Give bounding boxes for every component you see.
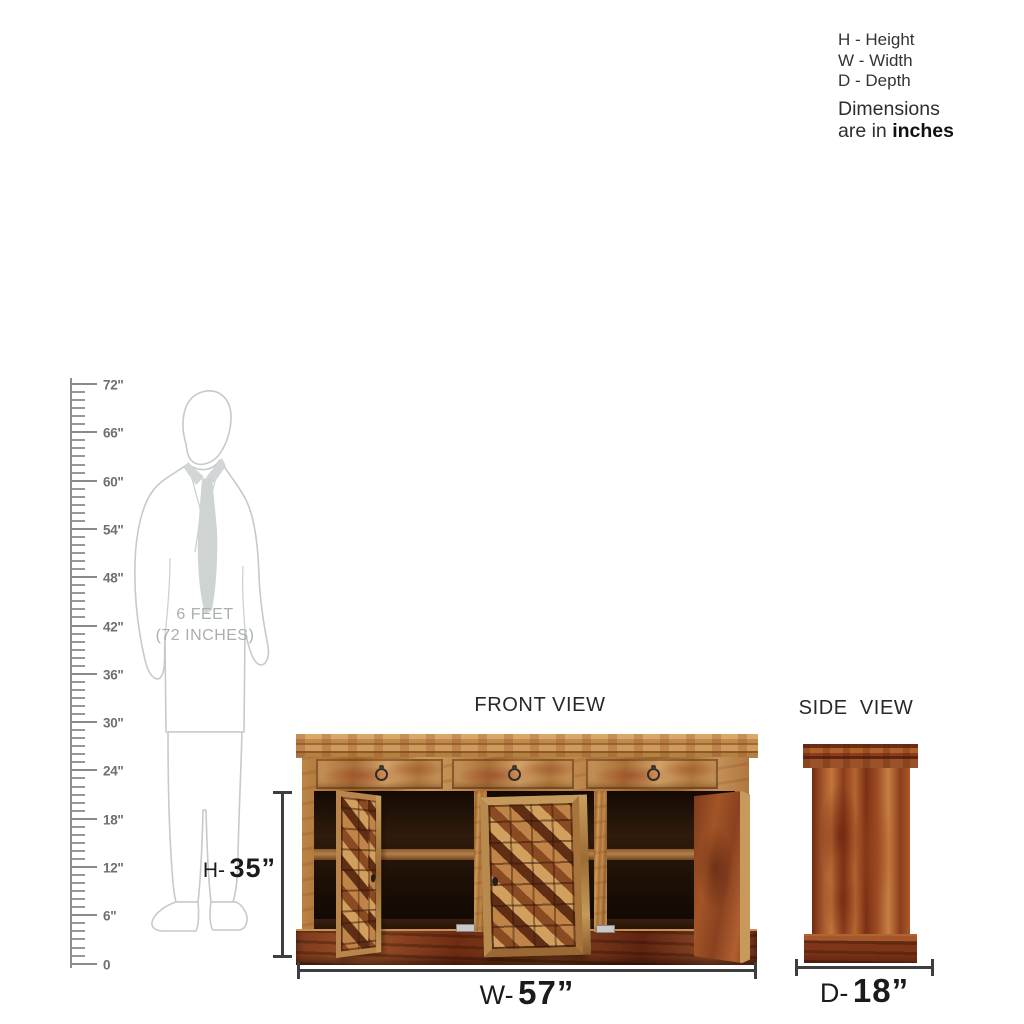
side-view-cabinet: [803, 744, 918, 963]
width-label: W- 57”: [297, 974, 757, 1012]
ruler-major-tick: [72, 528, 97, 530]
ruler-minor-tick: [72, 391, 85, 393]
ruler-minor-tick: [72, 898, 85, 900]
ruler-minor-tick: [72, 761, 85, 763]
depth-value: 18”: [853, 972, 909, 1009]
width-dimension-line: [297, 969, 757, 972]
ruler-minor-tick: [72, 906, 85, 908]
ruler-minor-tick: [72, 850, 85, 852]
front-view-title: FRONT VIEW: [420, 694, 660, 717]
ruler-minor-tick: [72, 842, 85, 844]
ruler-major-tick: [72, 721, 97, 723]
ruler-minor-tick: [72, 633, 85, 635]
ruler-major-tick: [72, 383, 97, 385]
cabinet-top-cornice: [296, 734, 758, 757]
ruler-minor-tick: [72, 641, 85, 643]
ruler-minor-tick: [72, 592, 85, 594]
ruler-major-tick: [72, 576, 97, 578]
ruler-minor-tick: [72, 713, 85, 715]
ruler-tick-label: 6": [103, 909, 116, 924]
ruler-tick-label: 60": [103, 474, 124, 489]
ruler-minor-tick: [72, 472, 85, 474]
height-dimension-line: [281, 791, 284, 958]
ruler-minor-tick: [72, 536, 85, 538]
ring-pull-icon: [647, 768, 660, 781]
dimension-diagram-page: { "legend": { "items": ["H - Height", "W…: [0, 0, 1024, 1024]
ruler-minor-tick: [72, 544, 85, 546]
legend-note: Dimensions are in inches: [838, 98, 978, 143]
ruler-minor-tick: [72, 447, 85, 449]
ring-pull-icon: [508, 768, 521, 781]
width-value: 57”: [518, 974, 574, 1011]
figure-caption-line2: (72 INCHES): [143, 625, 267, 646]
frame-stile-right: [594, 791, 607, 932]
ruler-tick-label: 18": [103, 812, 124, 827]
side-panel: [812, 768, 910, 936]
ruler-tick-label: 48": [103, 571, 124, 586]
legend-note-line2: are in inches: [838, 120, 978, 143]
ruler-minor-tick: [72, 786, 85, 788]
ruler-minor-tick: [72, 608, 85, 610]
ruler-minor-tick: [72, 777, 85, 779]
legend-height: H - Height: [838, 30, 978, 51]
depth-prefix: D-: [820, 978, 849, 1008]
ruler-minor-tick: [72, 657, 85, 659]
door-middle-carved: [480, 795, 584, 958]
ruler-minor-tick: [72, 834, 85, 836]
side-top-cornice: [803, 744, 918, 768]
ruler-minor-tick: [72, 568, 85, 570]
ring-pull-icon: [375, 768, 388, 781]
latch-plate: [596, 925, 615, 933]
ruler-minor-tick: [72, 737, 85, 739]
height-value: 35”: [229, 853, 276, 883]
ruler-minor-tick: [72, 560, 85, 562]
figure-shoe-right: [210, 902, 247, 930]
side-plinth: [804, 934, 917, 963]
ruler-minor-tick: [72, 890, 85, 892]
ruler-minor-tick: [72, 504, 85, 506]
height-prefix: H-: [203, 859, 225, 882]
drawer-row: [302, 757, 749, 791]
ruler-major-tick: [72, 480, 97, 482]
ruler-minor-tick: [72, 415, 85, 417]
width-prefix: W-: [480, 980, 514, 1010]
ruler-tick-label: 42": [103, 619, 124, 634]
ruler-minor-tick: [72, 745, 85, 747]
ruler-major-tick: [72, 818, 97, 820]
ruler-minor-tick: [72, 439, 85, 441]
ruler-tick-label: 24": [103, 764, 124, 779]
door-knob-icon: [371, 874, 375, 883]
ruler-minor-tick: [72, 399, 85, 401]
drawer-left: [316, 759, 443, 789]
figure-shoe-left: [152, 902, 199, 931]
depth-dimension-line: [795, 966, 934, 969]
ruler-minor-tick: [72, 729, 85, 731]
ruler-minor-tick: [72, 930, 85, 932]
ruler-major-tick: [72, 914, 97, 916]
ruler-major-tick: [72, 866, 97, 868]
ruler-minor-tick: [72, 407, 85, 409]
ruler-minor-tick: [72, 520, 85, 522]
ruler-tick-label: 36": [103, 667, 124, 682]
ruler-minor-tick: [72, 681, 85, 683]
front-view-cabinet: [296, 734, 758, 965]
ruler-tick-label: 0: [103, 957, 110, 972]
legend-width: W - Width: [838, 51, 978, 72]
figure-caption-line1: 6 FEET: [143, 604, 267, 625]
drawer-middle: [452, 759, 574, 789]
ruler-minor-tick: [72, 826, 85, 828]
ruler-major-tick: [72, 963, 97, 965]
ruler-minor-tick: [72, 464, 85, 466]
figure-caption: 6 FEET (72 INCHES): [143, 604, 267, 646]
ruler-minor-tick: [72, 794, 85, 796]
ruler-minor-tick: [72, 874, 85, 876]
ruler-minor-tick: [72, 496, 85, 498]
ruler-tick-label: 12": [103, 861, 124, 876]
ruler-minor-tick: [72, 665, 85, 667]
door-left-open: [336, 790, 381, 958]
ruler-minor-tick: [72, 858, 85, 860]
ruler-minor-tick: [72, 705, 85, 707]
ruler-minor-tick: [72, 689, 85, 691]
ruler-minor-tick: [72, 697, 85, 699]
side-view-title: SIDE VIEW: [772, 697, 940, 720]
ruler-major-tick: [72, 431, 97, 433]
latch-plate: [456, 924, 475, 932]
ruler-major-tick: [72, 625, 97, 627]
ruler-minor-tick: [72, 616, 85, 618]
ruler-tick-label: 54": [103, 522, 124, 537]
ruler-minor-tick: [72, 810, 85, 812]
height-label: H- 35”: [150, 853, 276, 884]
ruler-minor-tick: [72, 753, 85, 755]
ruler-minor-tick: [72, 584, 85, 586]
figure-head: [183, 391, 231, 464]
ruler-major-tick: [72, 673, 97, 675]
legend-note-unit: inches: [892, 120, 954, 142]
ruler-minor-tick: [72, 649, 85, 651]
ruler-minor-tick: [72, 922, 85, 924]
ruler-major-tick: [72, 769, 97, 771]
legend-note-line1: Dimensions: [838, 98, 978, 121]
depth-label: D- 18”: [795, 972, 934, 1010]
ruler-tick-label: 66": [103, 426, 124, 441]
legend-depth: D - Depth: [838, 71, 978, 92]
door-knob-icon: [492, 877, 498, 886]
ruler-minor-tick: [72, 423, 85, 425]
drawer-right: [586, 759, 718, 789]
ruler-minor-tick: [72, 882, 85, 884]
ruler-minor-tick: [72, 488, 85, 490]
ruler-minor-tick: [72, 802, 85, 804]
ruler-minor-tick: [72, 947, 85, 949]
ruler-minor-tick: [72, 455, 85, 457]
door-right-open: [694, 791, 750, 963]
ruler-tick-label: 72": [103, 378, 124, 393]
ruler-minor-tick: [72, 600, 85, 602]
ruler-tick-label: 30": [103, 716, 124, 731]
dimension-legend: H - Height W - Width D - Depth Dimension…: [838, 30, 978, 143]
ruler-minor-tick: [72, 552, 85, 554]
ruler-minor-tick: [72, 955, 85, 957]
ruler-minor-tick: [72, 938, 85, 940]
ruler-minor-tick: [72, 512, 85, 514]
